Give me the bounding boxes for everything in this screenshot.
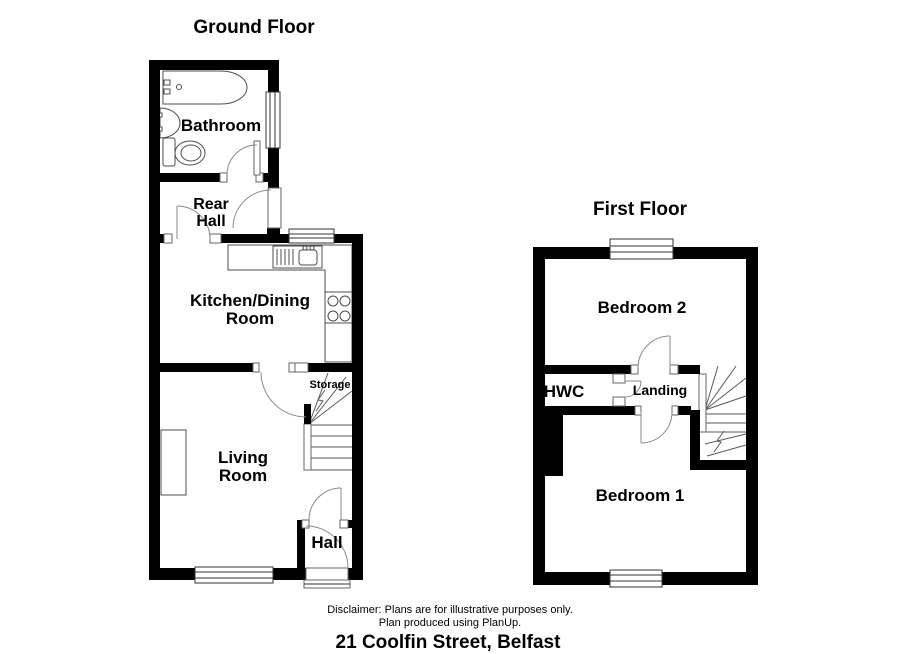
ground-floor-plan: Ground Floor [149,17,363,588]
kitchen-label-1: Kitchen/Dining [190,291,310,310]
stair-rail [304,424,311,470]
rear-hall-label-2: Hall [196,213,225,230]
living-room-door-arc [261,372,306,417]
living-room-window [195,567,273,583]
floorplan-drawing: Ground Floor [0,0,900,654]
landing-label: Landing [633,382,687,398]
kitchen-window [289,229,334,243]
bedroom2-window [610,239,673,259]
bathroom-window [266,92,280,148]
wash-basin [160,108,180,138]
kitchen-label-2: Room [226,309,274,328]
bathroom-label: Bathroom [181,116,261,135]
first-floor-title: First Floor [593,199,688,220]
living-room-label-2: Room [219,466,267,485]
hwc-label: HWC [544,382,585,401]
disclaimer-line-1: Disclaimer: Plans are for illustrative p… [327,604,573,616]
toilet-cistern [163,138,175,166]
storage-label: Storage [310,379,351,391]
stair-rail [699,374,706,432]
hall-door-arc [309,488,341,520]
sink-bowl [299,250,317,265]
bath-tub [163,71,247,104]
back-door-arc [233,190,271,228]
footer: Disclaimer: Plans are for illustrative p… [327,604,573,653]
rear-hall-label-1: Rear [193,196,229,213]
bathroom-door-leaf [254,141,260,175]
bedroom1-window [610,570,662,587]
disclaimer-line-2: Plan produced using PlanUp. [379,617,521,629]
bath-tap [164,89,170,94]
back-door-leaf [268,188,281,228]
first-floor-stairs [699,366,746,456]
bedroom1-label: Bedroom 1 [596,486,685,505]
bedroom1-door-arc [641,412,672,443]
address-title: 21 Coolfin Street, Belfast [336,632,562,653]
ground-windows [195,92,334,583]
front-door-leaf [306,568,348,580]
bathroom-door-arc [227,145,257,175]
first-floor-plan: First Floor [533,199,758,587]
hall-label: Hall [311,533,342,552]
bedroom2-door-arc [638,336,670,368]
bath-tap [164,80,170,85]
chimney-breast [161,430,186,495]
bedroom2-label: Bedroom 2 [598,298,687,317]
storage-door-leaf [295,363,308,372]
ground-floor-title: Ground Floor [193,17,315,38]
floorplan-page: Ground Floor [0,0,900,654]
living-room-label-1: Living [218,448,268,467]
